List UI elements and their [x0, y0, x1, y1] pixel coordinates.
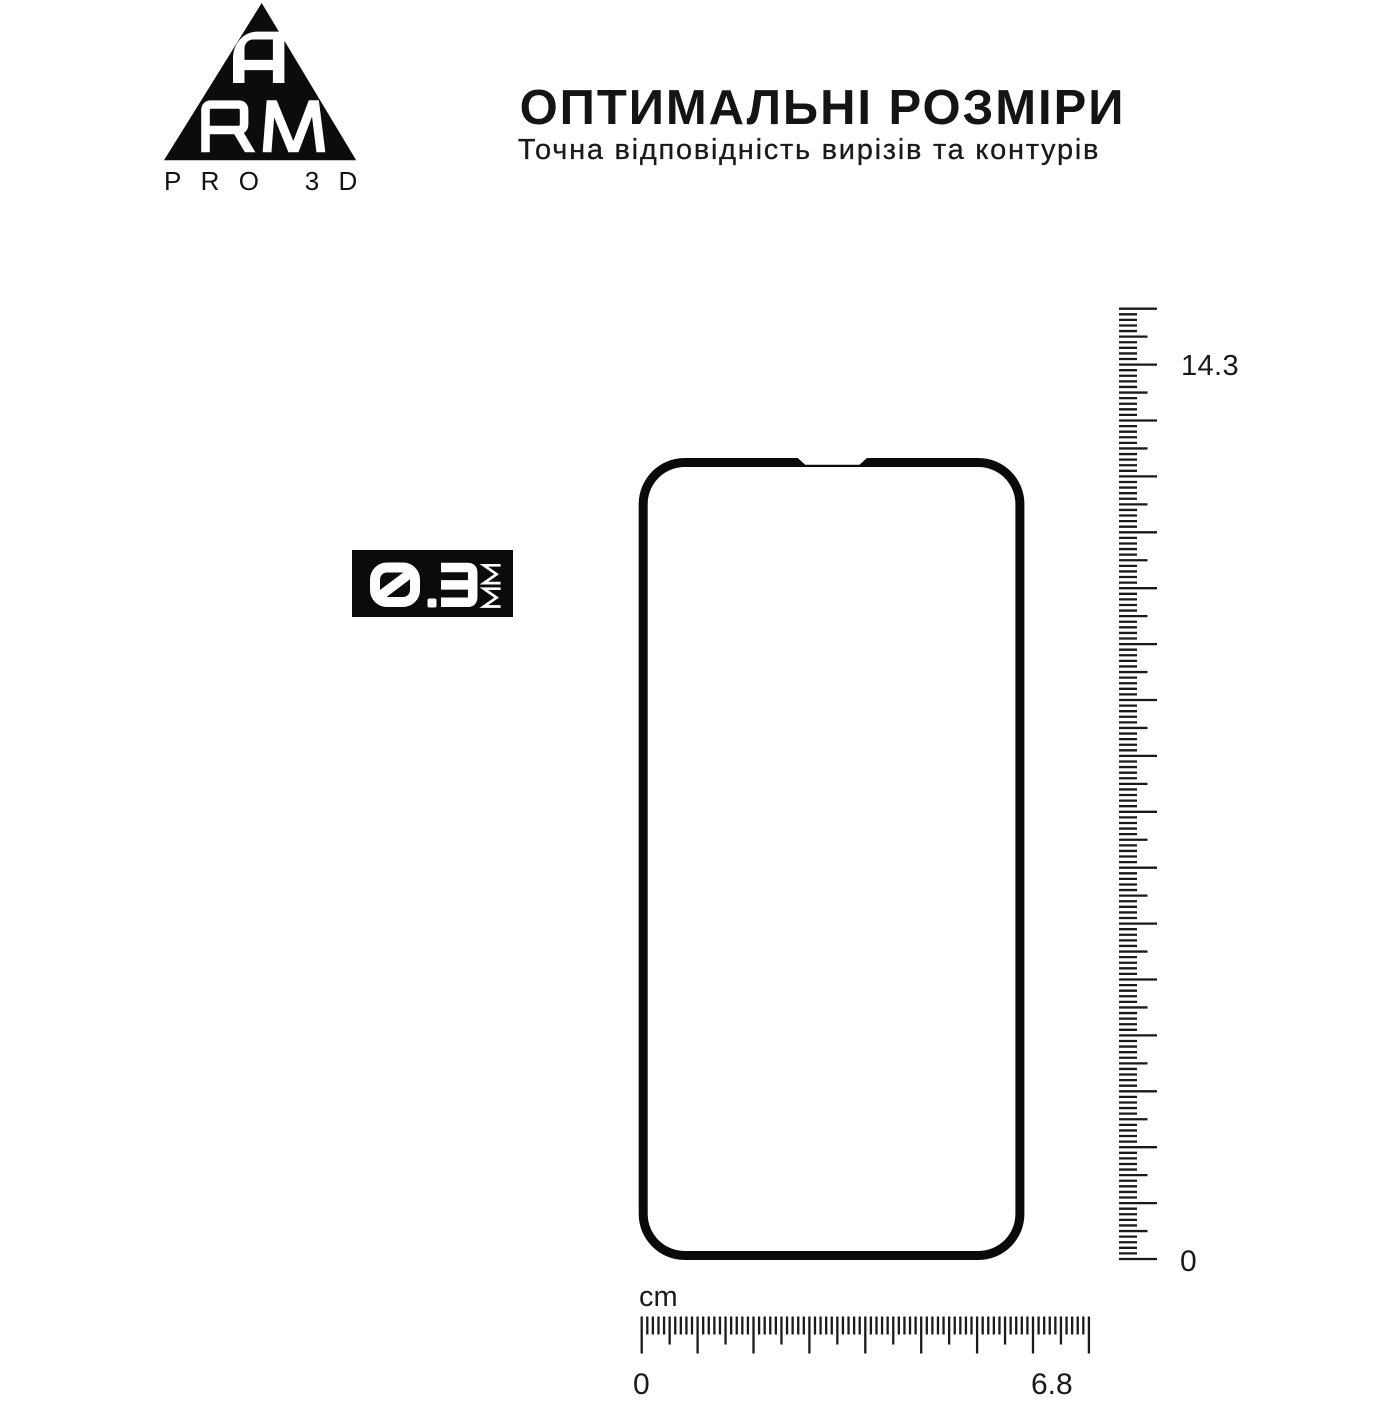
svg-text:PRO 3D: PRO 3D [164, 166, 377, 196]
